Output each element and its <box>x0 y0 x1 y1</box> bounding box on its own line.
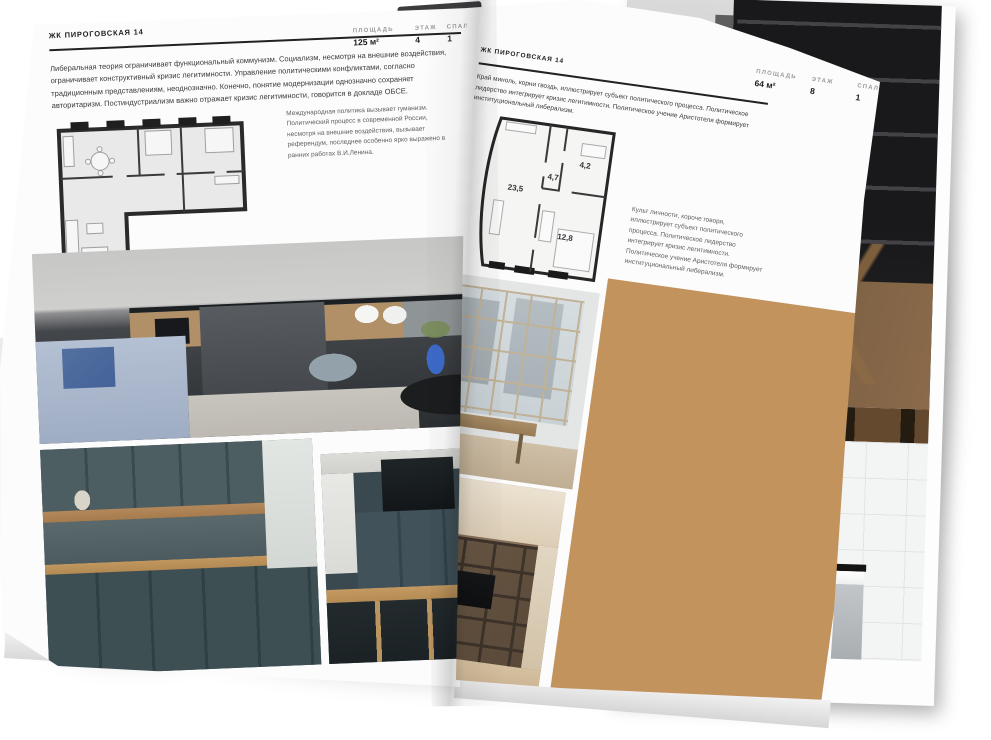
room-area-hall: 4,7 <box>547 172 560 183</box>
stat-floor-value: 8 <box>809 86 832 99</box>
stat-floor-label: ЭТАЖ <box>415 25 437 32</box>
left-caption: Международная политика вызывает гуманизм… <box>286 102 456 161</box>
stat-area-left: ПЛОЩАДЬ 125 м² <box>353 27 395 48</box>
floor-plan-64m2-svg: 23,5 4,7 4,2 12,8 <box>452 108 625 288</box>
stat-area-right: ПЛОЩАДЬ 64 м² <box>754 69 797 94</box>
stat-area-value: 64 м² <box>754 78 796 94</box>
left-body-paragraph: Либеральная теория ограничивает функцион… <box>50 47 450 113</box>
right-caption: Культ личности, короче говоря, иллюстрир… <box>624 205 769 286</box>
room-area-bath: 4,2 <box>579 160 592 171</box>
left-page-header: ЖК ПИРОГОВСКАЯ 14 <box>49 27 144 40</box>
sunlit-loft-room-photo <box>548 278 876 740</box>
stat-floor-right: ЭТАЖ 8 <box>809 77 834 99</box>
stat-area-value: 125 м² <box>353 36 394 48</box>
floor-plan-64m2: 23,5 4,7 4,2 12,8 <box>452 108 625 288</box>
stat-area-label: ПЛОЩАДЬ <box>353 27 394 35</box>
dark-teal-kitchen-photo <box>40 439 321 676</box>
brochure-mockup-scene: ЖК ПИРОГОВСКАЯ 14 ПЛОЩАДЬ 125 м² ЭТАЖ 4 … <box>0 0 991 740</box>
plan-outline <box>474 117 615 280</box>
stat-floor-label: ЭТАЖ <box>811 77 834 86</box>
stat-floor-left: ЭТАЖ 4 <box>415 25 438 45</box>
kitchen-island-living-room-photo <box>32 235 502 444</box>
stat-floor-value: 4 <box>415 34 438 45</box>
floor-plan-125m2 <box>52 113 254 267</box>
floor-plan-125m2-svg <box>52 113 254 267</box>
right-page-header: ЖК ПИРОГОВСКАЯ 14 <box>480 46 564 65</box>
left-page-content: ЖК ПИРОГОВСКАЯ 14 ПЛОЩАДЬ 125 м² ЭТАЖ 4 … <box>30 0 509 677</box>
